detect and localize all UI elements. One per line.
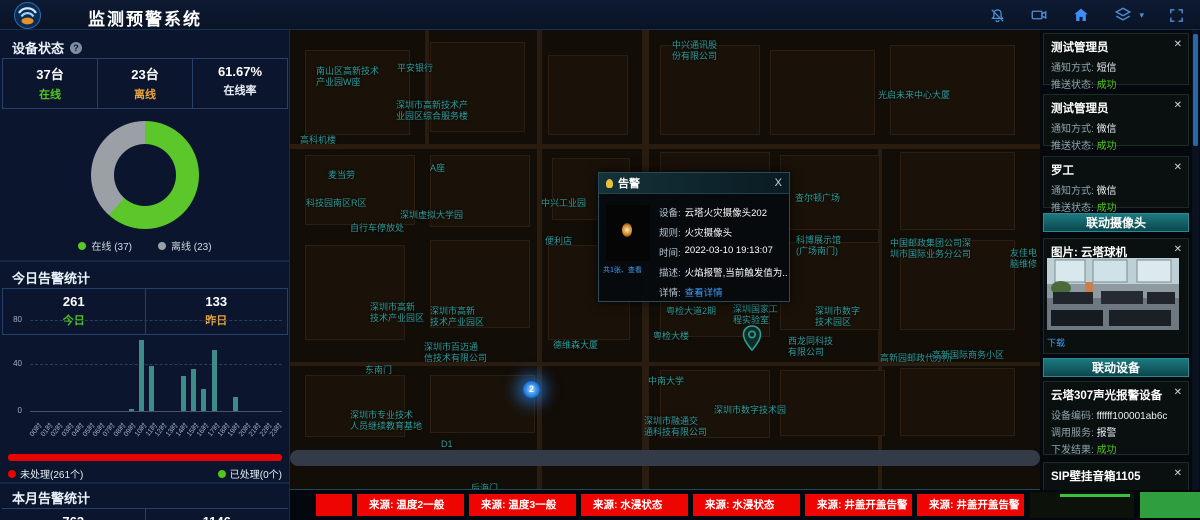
map-label: 麦当劳	[328, 170, 355, 181]
map-label: 友佳电脑维修	[1010, 248, 1040, 270]
field-description: 描述:火焰报警,当前触发值为...	[659, 265, 787, 279]
map-building-block	[305, 50, 410, 135]
alert-marker[interactable]: 2	[523, 381, 540, 398]
map-label: 深圳市数字技术园区	[815, 306, 860, 328]
map-label: 科技园南区R区	[306, 198, 367, 209]
legend-handled: 已处理(0个)	[218, 466, 282, 481]
handled-dot	[218, 470, 226, 478]
alert-source-chip[interactable]: 来源: 井盖开盖告警	[805, 494, 912, 516]
map-label: 高科机楼	[300, 135, 336, 146]
field-device: 设备:云塔火灾摄像头202	[659, 205, 787, 219]
map-label: 深圳市专业技术人员继续教育基地	[350, 410, 422, 432]
fullscreen-icon[interactable]	[1166, 5, 1186, 25]
donut-hole	[114, 144, 176, 206]
stat-offline: 23台 离线	[97, 59, 192, 108]
map-label: 德维森大厦	[553, 340, 598, 351]
legend-offline-dot	[158, 242, 166, 250]
bar-18时	[220, 320, 230, 411]
field-time: 时间:2022-03-10 19:13:07	[659, 245, 787, 259]
alert-popup-title: 告警	[618, 175, 770, 191]
map-label: 中兴通讯股份有限公司	[672, 40, 717, 62]
map-label: 光启未来中心大厦	[878, 90, 950, 101]
notify-card: ✕ 罗工 通知方式: 微信 推送状态: 成功	[1043, 156, 1189, 208]
alert-source-chip[interactable]: 来源: 水浸状态	[693, 494, 800, 516]
linked-device-header[interactable]: 联动设备	[1043, 358, 1189, 377]
map-road	[425, 30, 429, 144]
map-label: 平安银行	[397, 63, 433, 74]
close-icon[interactable]: ✕	[1174, 162, 1182, 173]
close-icon[interactable]: ✕	[1174, 387, 1182, 398]
map-label: 自行车停放处	[350, 223, 404, 234]
device-card: ✕ SIP壁挂音箱1105 设备编码: 1106	[1043, 462, 1189, 490]
map-boulevard	[290, 450, 1040, 466]
unhandled-progress-bar	[8, 454, 282, 461]
bar-22时	[261, 320, 271, 411]
unhandled-dot	[8, 470, 16, 478]
map-label: 便利店	[545, 236, 572, 247]
map-canvas[interactable]: 中兴通讯股份有限公司平安银行南山区高新技术产业园W座深圳市高新技术产业园区综合服…	[290, 30, 1040, 490]
bar-09时	[126, 320, 136, 411]
bar-08时	[115, 320, 125, 411]
bottom-alert-ticker: 来源: 温度2一般来源: 温度3一般来源: 水浸状态来源: 水浸状态来源: 井盖…	[290, 490, 1200, 520]
bar-17时	[209, 320, 219, 411]
top-header: 监测预警系统	[0, 0, 1200, 30]
chevron-down-icon[interactable]: ▾	[1139, 10, 1144, 21]
bell-off-icon[interactable]	[987, 5, 1007, 25]
alert-chip-partial[interactable]	[316, 494, 352, 516]
notify-card: ✕ 测试管理员 通知方式: 微信 推送状态: 成功	[1043, 94, 1189, 146]
close-icon[interactable]: ✕	[1174, 244, 1182, 255]
bar-11时	[147, 320, 157, 411]
close-icon[interactable]: ✕	[1174, 468, 1182, 479]
close-icon[interactable]: ✕	[1174, 39, 1182, 50]
map-label: A座	[430, 163, 445, 174]
bar-21时	[251, 320, 261, 411]
flame-glow	[622, 223, 632, 237]
bar-14时	[178, 320, 188, 411]
bar-20时	[240, 320, 250, 411]
bar-12时	[157, 320, 167, 411]
map-label: 中南大学	[648, 376, 684, 387]
device-status-donut-chart	[91, 121, 199, 229]
hourly-bar-chart	[32, 320, 282, 411]
bar-10时	[136, 320, 146, 411]
stat-month-previous: 1146	[145, 509, 289, 520]
page-title: 监测预警系统	[88, 5, 202, 30]
map-building-block	[900, 152, 1015, 230]
alert-source-chip[interactable]: 来源: 温度2一般	[357, 494, 464, 516]
legend-online[interactable]: 在线 (37)	[78, 238, 132, 253]
ytick-80: 80	[0, 315, 22, 324]
camera-snapshot-image[interactable]	[1047, 258, 1179, 330]
map-label: 深圳虚拟大学园	[400, 210, 463, 221]
ytick-0: 0	[0, 406, 22, 415]
alarm-bulb-icon	[606, 179, 613, 188]
legend-online-dot	[78, 242, 86, 250]
bar-03时	[63, 320, 73, 411]
map-building-block	[430, 375, 535, 433]
map-label: 深圳市高新技术产业园区	[430, 306, 484, 328]
section-divider-2	[0, 482, 290, 484]
map-building-block	[900, 368, 1015, 436]
bar-04时	[74, 320, 84, 411]
map-label: 科博展示馆(广场南门)	[796, 235, 841, 257]
view-detail-link[interactable]: 查看详情	[685, 285, 723, 299]
right-alerts-panel: ✕ 测试管理员 通知方式: 短信 推送状态: 成功 ✕ 测试管理员 通知方式: …	[1040, 30, 1192, 490]
stat-online-rate: 61.67% 在线率	[192, 59, 287, 108]
device-status-title: 设备状态 ?	[12, 38, 82, 57]
close-icon[interactable]: ✕	[1174, 100, 1182, 111]
bar-06时	[95, 320, 105, 411]
today-alerts-title: 今日告警统计	[12, 268, 90, 287]
alert-source-chip[interactable]: 来源: 水浸状态	[581, 494, 688, 516]
ytick-40: 40	[0, 359, 22, 368]
map-label: 后海门	[471, 483, 498, 490]
linked-camera-header[interactable]: 联动摄像头	[1043, 213, 1189, 232]
map-label: 深圳市百迈通信技术有限公司	[424, 342, 487, 364]
map-label: 深圳市数字技术园	[714, 405, 786, 416]
bar-15时	[188, 320, 198, 411]
map-building-block	[770, 50, 875, 135]
bar-13时	[167, 320, 177, 411]
map-label: 查尔顿广场	[795, 193, 840, 204]
month-alerts-stats: 763 1146	[2, 508, 288, 520]
map-label: 中兴工业园	[541, 198, 586, 209]
alert-popup: 告警 X 共1张、查看 设备:云塔火灾摄像头202 规则:火灾摄像头 时间:20…	[598, 172, 790, 302]
bar-19时	[230, 320, 240, 411]
field-rule: 规则:火灾摄像头	[659, 225, 787, 239]
bar-02时	[53, 320, 63, 411]
map-label: 深圳市高新技术产业园区	[370, 302, 424, 324]
alert-source-chip[interactable]: 来源: 井盖开盖告警	[917, 494, 1024, 516]
app-logo-icon	[14, 2, 41, 34]
map-building-block	[305, 155, 415, 225]
scrollbar-thumb[interactable]	[1193, 34, 1198, 146]
hourly-bar-xlabels: 00时01时02时03时04时05时06时07时08时09时10时11时12时1…	[32, 415, 282, 439]
notify-card: ✕ 测试管理员 通知方式: 短信 推送状态: 成功	[1043, 33, 1189, 85]
map-pin-icon[interactable]	[742, 325, 762, 356]
map-road	[537, 30, 542, 490]
home-icon[interactable]	[1071, 5, 1091, 25]
header-icon-bar: ▾	[987, 0, 1186, 30]
alert-snapshot-image[interactable]	[606, 205, 650, 261]
bar-00时	[32, 320, 42, 411]
layers-icon[interactable]	[1113, 5, 1133, 25]
map-label: 高新国际商务小区	[932, 350, 1004, 361]
stat-month-current: 763	[2, 509, 145, 520]
progress-legend: 未处理(261个) 已处理(0个)	[8, 466, 282, 481]
legend-unhandled: 未处理(261个)	[8, 466, 83, 481]
map-label: 南山区高新技术产业园W座	[316, 66, 379, 88]
map-label: 深圳市融通交通科技有限公司	[644, 416, 707, 438]
snapshot-links[interactable]: 共1张、查看	[603, 265, 655, 275]
map-label: D1	[441, 439, 453, 450]
download-link[interactable]: 下载	[1047, 336, 1065, 349]
bar-23时	[272, 320, 282, 411]
camera-feed-thumbnail[interactable]	[1030, 492, 1134, 518]
stat-online: 37台 在线	[3, 59, 97, 108]
legend-offline[interactable]: 离线 (23)	[158, 238, 212, 253]
month-alerts-title: 本月告警统计	[12, 488, 90, 507]
map-label: 西龙同科技有限公司	[788, 336, 833, 358]
map-label: 中国邮政集团公司深圳市国际业务分公司	[890, 238, 971, 260]
popup-close-icon[interactable]: X	[775, 177, 782, 189]
map-label: 粤检大楼	[653, 331, 689, 342]
device-card: ✕ 云塔307声光报警设备 设备编码: ffffff100001ab6c 调用服…	[1043, 381, 1189, 455]
map-label: 粤检大道2期	[666, 306, 716, 317]
map-label: 深圳市高新技术产业园区综合服务楼	[396, 100, 468, 122]
osd-text-line	[1060, 494, 1130, 497]
app-root: 监测预警系统	[0, 0, 1200, 520]
map-road	[290, 144, 1040, 149]
left-stats-panel: 设备状态 ? 37台 在线 23台 离线 61.67% 在线率 在线 (37)	[0, 30, 290, 520]
bar-16时	[199, 320, 209, 411]
map-label: 深圳国家工程实验室	[733, 304, 778, 326]
section-divider	[0, 260, 290, 262]
donut-legend: 在线 (37) 离线 (23)	[0, 238, 290, 253]
bar-07时	[105, 320, 115, 411]
bar-01时	[42, 320, 52, 411]
field-detail: 详情: 查看详情	[659, 285, 787, 299]
x-axis-line	[30, 411, 282, 412]
camera-feed-thumbnail-green[interactable]	[1140, 492, 1200, 518]
device-status-stats: 37台 在线 23台 离线 61.67% 在线率	[2, 58, 288, 109]
map-building-block	[780, 370, 885, 436]
map-building-block	[305, 245, 405, 340]
alert-popup-header: 告警 X	[599, 173, 789, 194]
bar-05时	[84, 320, 94, 411]
map-label: 东南门	[365, 365, 392, 376]
alert-source-chip[interactable]: 来源: 温度3一般	[469, 494, 576, 516]
help-icon[interactable]: ?	[70, 42, 82, 54]
video-camera-icon[interactable]	[1029, 5, 1049, 25]
map-building-block	[548, 55, 628, 135]
